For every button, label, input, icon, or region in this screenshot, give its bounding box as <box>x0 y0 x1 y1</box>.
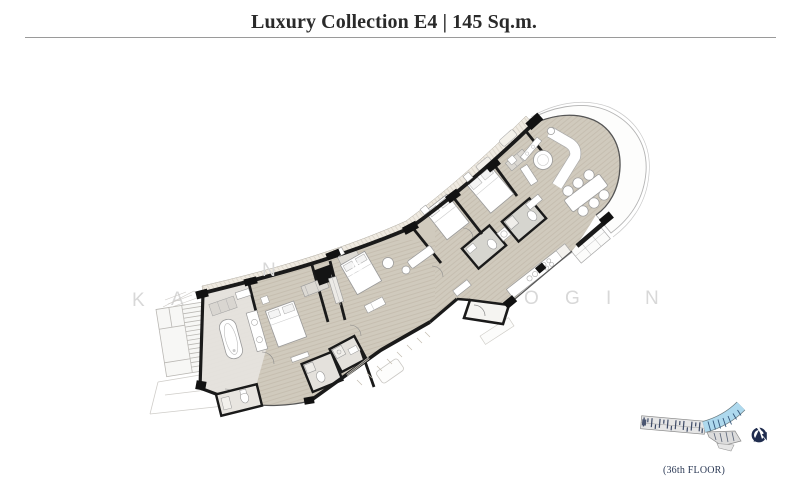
svg-text:K: K <box>132 290 145 311</box>
svg-text:P: P <box>351 260 364 281</box>
svg-text:N: N <box>262 260 276 281</box>
svg-text:I: I <box>606 288 611 309</box>
svg-text:G: G <box>565 288 580 309</box>
svg-text:Luxury Collection E4 | 145 Sq.: Luxury Collection E4 | 145 Sq.m. <box>251 11 537 33</box>
svg-text:O: O <box>524 288 539 309</box>
svg-text:N: N <box>645 288 659 309</box>
svg-text:(36th FLOOR): (36th FLOOR) <box>663 465 725 476</box>
